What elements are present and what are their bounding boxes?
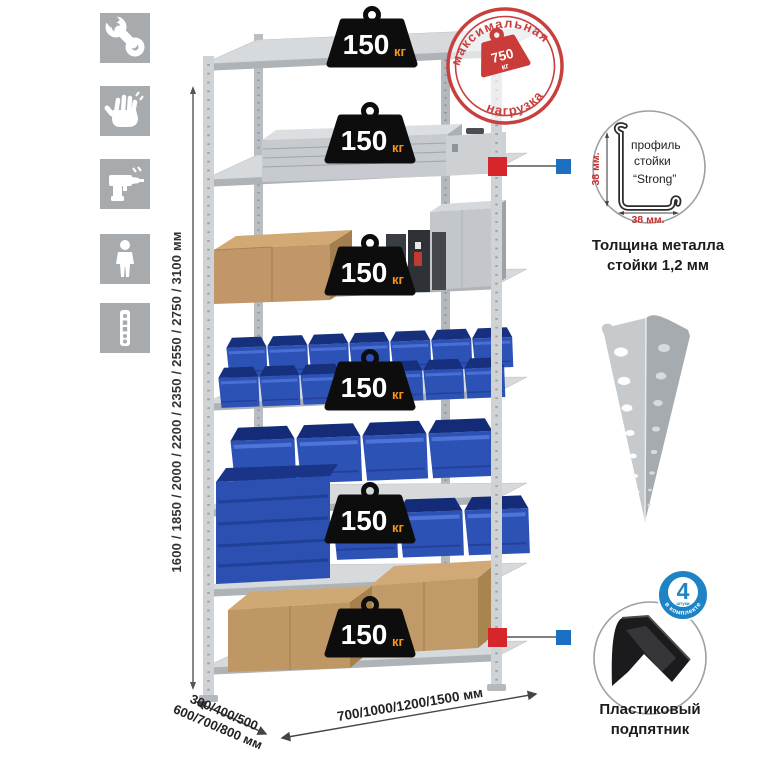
post-corner-detail xyxy=(602,315,690,522)
profile-detail-circle: 38 мм. 38 мм. профиль стойки “Strong” xyxy=(590,108,708,231)
weight-value: 150 xyxy=(341,619,388,650)
weight-unit: кг xyxy=(392,272,405,287)
weight-icon: 150 кг xyxy=(308,232,432,298)
profile-label-3: “Strong” xyxy=(633,172,676,186)
foot-caption-line2: подпятник xyxy=(565,720,735,740)
max-load-stamp: 750 кг максимальная нагрузка xyxy=(443,4,567,133)
weight-icon: 150 кг xyxy=(308,347,432,413)
profile-connector xyxy=(488,157,571,176)
red-marker-square xyxy=(488,628,507,647)
included-badge: 4 штуки в комплекте xyxy=(656,568,710,627)
weight-icon: 150 кг xyxy=(310,4,434,70)
profile-caption-line1: Толщина металла xyxy=(570,236,746,256)
profile-label-2: стойки xyxy=(634,154,671,168)
weight-unit: кг xyxy=(392,634,405,649)
weight-value: 150 xyxy=(341,505,388,536)
weight-value: 150 xyxy=(341,372,388,403)
weight-icon: 150 кг xyxy=(308,100,432,166)
weight-value: 150 xyxy=(341,125,388,156)
profile-dim-horizontal: 38 мм. xyxy=(631,214,664,226)
profile-dim-vertical: 38 мм. xyxy=(590,152,602,185)
blue-marker-square xyxy=(556,630,571,645)
weight-unit: кг xyxy=(392,140,405,155)
profile-label-1: профиль xyxy=(631,138,681,152)
profile-caption: Толщина металла стойки 1,2 мм xyxy=(570,236,746,275)
weight-unit: кг xyxy=(392,520,405,535)
height-dimension-label: 1600 / 1850 / 2000 / 2200 / 2350 / 2550 … xyxy=(169,102,187,702)
weight-unit: кг xyxy=(392,387,405,402)
product-infographic: 150 кг 150 кг 150 кг 150 кг 150 xyxy=(0,0,765,765)
weight-value: 150 xyxy=(341,257,388,288)
red-marker-square xyxy=(488,157,507,176)
foot-caption: Пластиковый подпятник xyxy=(565,700,735,739)
foot-connector xyxy=(488,628,571,647)
foot-caption-line1: Пластиковый xyxy=(565,700,735,720)
weight-unit: кг xyxy=(394,44,407,59)
weight-value: 150 xyxy=(343,29,390,60)
height-dimension-line xyxy=(190,86,196,690)
badge-unit: штуки xyxy=(676,601,690,606)
blue-marker-square xyxy=(556,159,571,174)
weight-icon: 150 кг xyxy=(308,594,432,660)
weight-icon: 150 кг xyxy=(308,480,432,546)
profile-caption-line2: стойки 1,2 мм xyxy=(570,256,746,276)
